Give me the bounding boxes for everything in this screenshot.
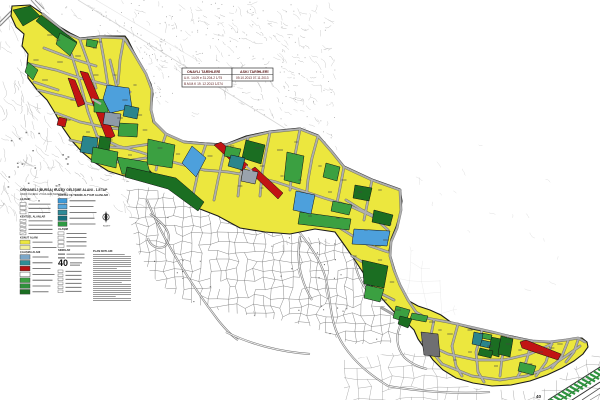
svg-text:ONAYLI TARİHLERİ: ONAYLI TARİHLERİ bbox=[187, 70, 220, 74]
svg-text:ASKI TARİHLERİ: ASKI TARİHLERİ bbox=[240, 70, 268, 74]
svg-text:KONUT ALANI: KONUT ALANI bbox=[20, 235, 38, 239]
svg-text:PLAN NOTLARI: PLAN NOTLARI bbox=[93, 249, 113, 253]
svg-text:40: 40 bbox=[58, 258, 68, 268]
svg-text:U.K. 14.09 e 31.204.2 1/75: U.K. 14.09 e 31.204.2 1/75 bbox=[184, 76, 222, 80]
svg-text:KUZEY: KUZEY bbox=[103, 226, 111, 228]
svg-text:LEJAND: LEJAND bbox=[20, 197, 31, 201]
svg-text:40: 40 bbox=[536, 394, 542, 399]
svg-text:09.10.2013 07.11.2013: 09.10.2013 07.11.2013 bbox=[236, 76, 269, 80]
svg-text:SINIRLAR: SINIRLAR bbox=[58, 248, 70, 252]
svg-text:KENTSEL ALANLAR: KENTSEL ALANLAR bbox=[20, 214, 45, 218]
svg-text:ÇALIŞMA ALANI: ÇALIŞMA ALANI bbox=[20, 250, 41, 254]
svg-text:ULAŞIM: ULAŞIM bbox=[58, 227, 68, 231]
svg-text:B.M.M.K 19. 12.2013 1/274: B.M.M.K 19. 12.2013 1/274 bbox=[184, 82, 223, 86]
svg-text:ORHANELİ (BURSA) KUZEY GELİŞME: ORHANELİ (BURSA) KUZEY GELİŞME ALANI - 1… bbox=[20, 188, 108, 192]
